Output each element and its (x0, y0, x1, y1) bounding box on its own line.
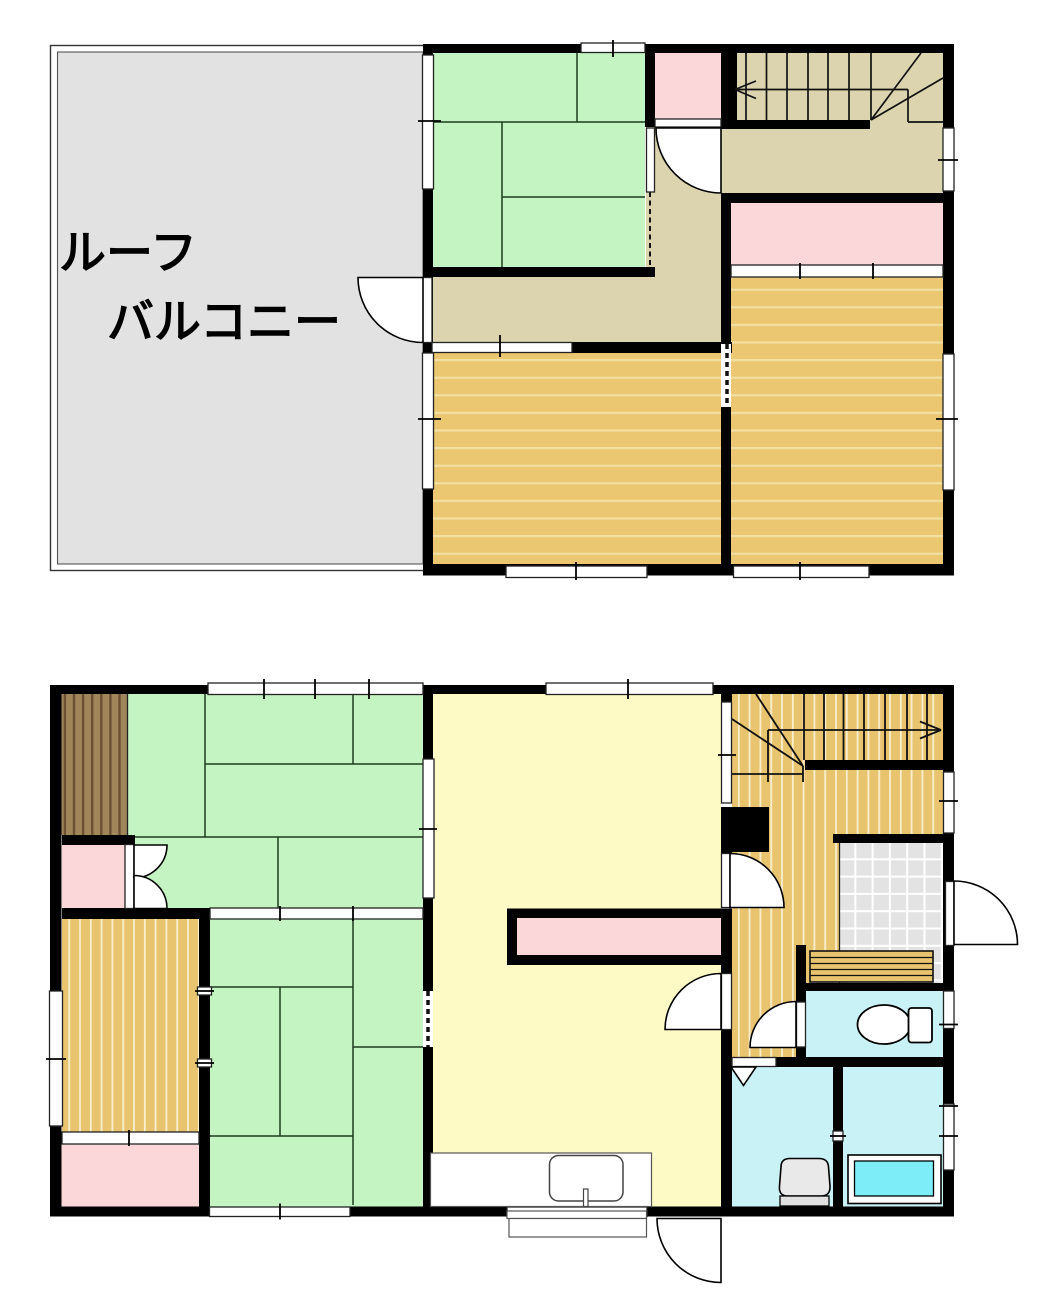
svg-text:バルコニー: バルコニー (107, 295, 341, 348)
svg-text:ルーフ: ルーフ (59, 226, 197, 279)
